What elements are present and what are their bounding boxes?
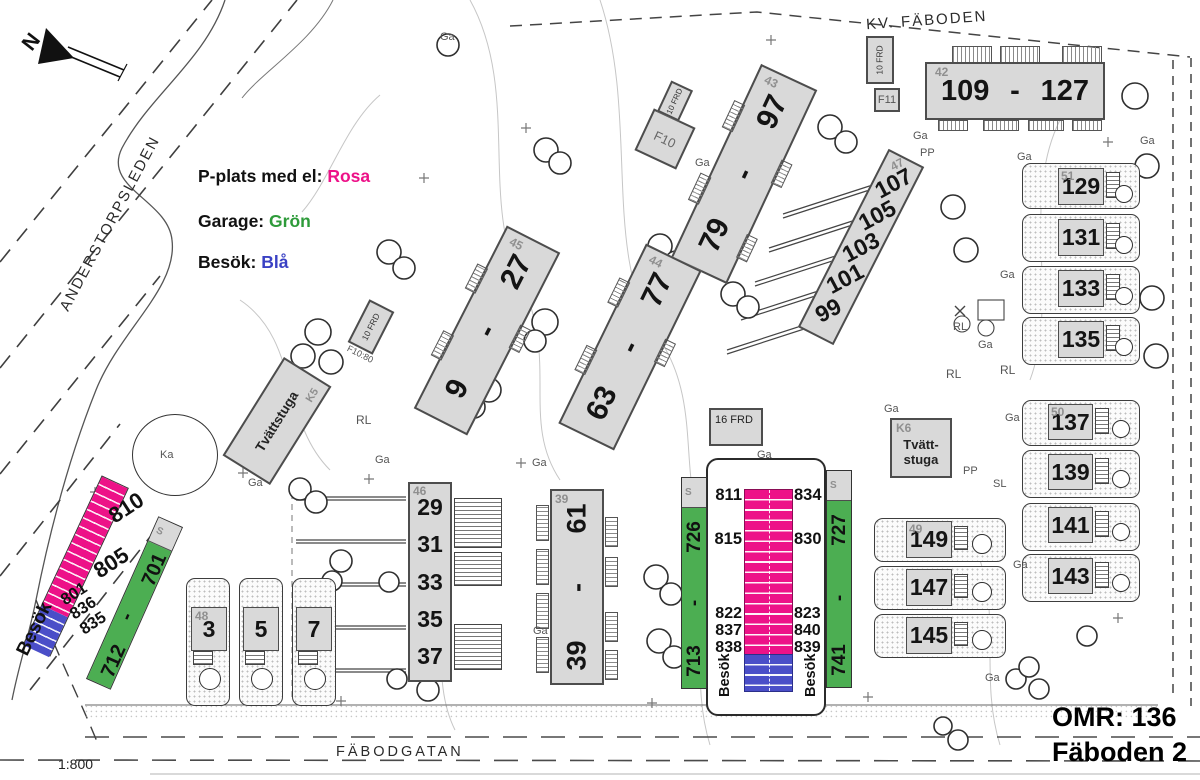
building-42-sep: - xyxy=(1010,75,1020,108)
building-tvattstuga-k6: K6 Tvätt- stuga xyxy=(890,418,952,478)
balcony-hatch xyxy=(1000,46,1040,63)
street-fabodgatan: FÄBODGATAN xyxy=(336,744,464,760)
houses-49-corner: 49 xyxy=(909,523,922,535)
ga-label: Ga xyxy=(1017,152,1032,163)
plan-title-omr: OMR: 136 xyxy=(1052,700,1187,735)
sl-label: SL xyxy=(993,479,1006,490)
houses-48-corner: 48 xyxy=(195,610,208,622)
building-45-sep: - xyxy=(470,318,505,342)
garage-727: 727 xyxy=(829,513,851,547)
yard-tree xyxy=(1112,523,1130,541)
house-131: 131 xyxy=(1058,219,1104,256)
house-135: 135 xyxy=(1058,321,1104,358)
balcony-hatch xyxy=(605,517,618,547)
house-stair xyxy=(1095,562,1109,588)
building-43-bottom: 79 xyxy=(693,213,738,258)
house-145: 145 xyxy=(906,617,952,654)
tvattstuga-k6-line2: stuga xyxy=(904,452,939,467)
ga-label: Ga xyxy=(1013,560,1028,571)
besok-label-center-left: Besök xyxy=(717,655,733,697)
house-141: 141 xyxy=(1048,507,1093,543)
pplats-822: 822 xyxy=(710,606,742,623)
rl-label: RL xyxy=(946,368,961,380)
building-42: 42 109 - 127 xyxy=(925,62,1105,120)
yard-tree xyxy=(1112,470,1130,488)
ga-label: Ga xyxy=(757,450,772,461)
pp-label: PP xyxy=(963,466,978,477)
site-plan-map: N ANDERSTORPSLEDEN FÄBODGATAN KV. FÄBODE… xyxy=(0,0,1200,780)
ga-label: Ga xyxy=(248,478,263,489)
roundabout xyxy=(132,414,218,496)
balcony-hatch xyxy=(536,593,549,629)
north-arrow-icon: N xyxy=(18,28,127,81)
house-139-num: 139 xyxy=(1051,459,1089,486)
house-stair xyxy=(193,651,213,665)
yard-tree xyxy=(1112,574,1130,592)
yard-tree xyxy=(972,534,992,554)
balcony-hatch xyxy=(1062,46,1102,63)
building-16frd: 16 FRD xyxy=(709,408,763,446)
building-39: 39 61 - 39 xyxy=(550,489,604,685)
tvattstuga-k5-label: Tvättstuga xyxy=(253,388,302,454)
garage-strip-726-713: S 726 - 713 xyxy=(681,477,707,689)
entrance-hatch xyxy=(1072,120,1102,131)
ga-label: Ga xyxy=(440,32,455,43)
house-5: 5 xyxy=(243,607,279,651)
building-f11-label: F11 xyxy=(878,94,896,106)
ga-label: Ga xyxy=(375,455,390,466)
legend-pplats: P-plats med el: Rosa xyxy=(198,166,370,187)
plan-title-name: Fäboden 2 xyxy=(1052,735,1187,770)
house-143-num: 143 xyxy=(1051,563,1089,590)
pplats-834: 834 xyxy=(794,486,822,505)
house-139: 139 xyxy=(1048,454,1093,490)
building-39-sep: - xyxy=(562,583,593,592)
house-141-num: 141 xyxy=(1051,512,1089,539)
houses-50-corner: 50 xyxy=(1051,406,1064,418)
balcony-hatch xyxy=(605,650,618,680)
house-129: 51 129 xyxy=(1058,168,1104,205)
ga-label: Ga xyxy=(532,458,547,469)
building-39-top: 61 xyxy=(561,503,592,533)
plan-title: OMR: 136 Fäboden 2 xyxy=(1052,700,1187,770)
besok-label-center-right: Besök xyxy=(803,655,819,697)
garage-741: 741 xyxy=(829,643,851,677)
house-147-num: 147 xyxy=(910,574,948,601)
building-45-top: 27 xyxy=(494,250,539,295)
house-145-num: 145 xyxy=(910,622,948,649)
balcony-hatch xyxy=(536,549,549,585)
yard-tree xyxy=(1115,338,1133,356)
building-f11: F11 xyxy=(874,88,900,112)
house-stair xyxy=(954,574,968,598)
building-42-left: 109 xyxy=(941,75,989,108)
entrance-hatch xyxy=(983,120,1019,131)
entrance-hatch xyxy=(1028,120,1064,131)
yard-tree xyxy=(1112,420,1130,438)
house-stair xyxy=(954,622,968,646)
building-44-sep: - xyxy=(613,335,648,359)
balcony-hatch xyxy=(952,46,992,63)
house-133: 133 xyxy=(1058,270,1104,307)
garage-726: 726 xyxy=(684,520,706,554)
tvattstuga-k6-corner: K6 xyxy=(896,422,911,434)
strip46-num: 33 xyxy=(417,569,443,596)
house-stair xyxy=(298,651,318,665)
yard-tree xyxy=(304,668,326,690)
rl-label: RL xyxy=(356,414,371,426)
house-5-num: 5 xyxy=(255,616,268,643)
building-44-top: 77 xyxy=(635,268,680,313)
pplats-811: 811 xyxy=(712,486,742,505)
tvattstuga-k6-line1: Tvätt- xyxy=(903,437,938,452)
building-45-bottom: 9 xyxy=(438,374,476,404)
building-43-sep: - xyxy=(726,162,761,185)
strip47-num: 99 xyxy=(811,293,846,329)
house-3: 48 3 xyxy=(191,607,227,651)
strip46-num: 31 xyxy=(417,531,443,558)
house-stair xyxy=(1095,458,1109,484)
house-stair xyxy=(1095,408,1109,434)
ga-label: Ga xyxy=(1005,413,1020,424)
building-44-bottom: 63 xyxy=(580,381,625,426)
balcony-hatch xyxy=(536,505,549,541)
building-39-bottom: 39 xyxy=(561,640,592,670)
yard-tree xyxy=(972,630,992,650)
ga-label: Ga xyxy=(913,131,928,142)
pp-label: PP xyxy=(920,148,935,159)
building-10frd-north-label: 10 FRD xyxy=(875,45,885,74)
building-43-top: 97 xyxy=(750,90,795,135)
yard-tree xyxy=(1115,185,1133,203)
building-42-right: 127 xyxy=(1041,75,1089,108)
legend-besok-label: Besök: xyxy=(198,252,256,272)
building-43-corner: 43 xyxy=(763,74,780,91)
pplats-837: 837 xyxy=(710,623,742,640)
ga-label: Ga xyxy=(1140,136,1155,147)
legend-garage-label: Garage: xyxy=(198,211,264,231)
tvattstuga-k5-corner: K5 xyxy=(304,387,321,405)
s-label: S xyxy=(830,480,837,491)
pplats-el-area-center xyxy=(744,489,793,656)
pplats-815: 815 xyxy=(712,530,742,549)
house-135-num: 135 xyxy=(1062,326,1100,353)
parking-center-block: 811 815 822 837 838 Besök 834 830 823 84… xyxy=(706,458,826,716)
building-10frd-45-label: 10 FRD xyxy=(360,312,382,343)
ga-label: Ga xyxy=(884,404,899,415)
garage-713: 713 xyxy=(684,644,706,678)
ga-label: Ga xyxy=(978,340,993,351)
balcony-hatch xyxy=(536,637,549,673)
house-7-num: 7 xyxy=(308,616,321,643)
house-147: 147 xyxy=(906,569,952,606)
rl-label: RL xyxy=(953,322,967,333)
stairwell xyxy=(454,498,502,548)
pplats-823: 823 xyxy=(794,606,821,623)
house-7: 7 xyxy=(296,607,332,651)
house-131-num: 131 xyxy=(1062,224,1100,251)
legend-pplats-value: Rosa xyxy=(327,166,370,186)
pplats-left-stack: 822 837 838 xyxy=(710,606,742,657)
legend-pplats-label: P-plats med el: xyxy=(198,166,322,186)
ga-label: Ga xyxy=(1000,270,1015,281)
garage-strip-727-741: S 727 - 741 xyxy=(826,470,852,688)
strip46-num: 37 xyxy=(417,643,443,670)
s-label: S xyxy=(685,487,692,498)
ka-label: Ka xyxy=(160,450,173,461)
building-10frd-f10-label: 10 FRD xyxy=(665,87,685,116)
ga-label: Ga xyxy=(533,626,548,637)
besok-area-center xyxy=(744,654,793,692)
building-42-corner: 42 xyxy=(935,66,948,78)
scale-label: 1:800 xyxy=(58,756,93,772)
yard-tree xyxy=(1115,287,1133,305)
building-46-strip: 46 29 31 33 35 37 xyxy=(408,482,452,682)
houses-51-corner: 51 xyxy=(1061,170,1074,182)
pplats-830: 830 xyxy=(794,530,822,549)
legend-besok: Besök: Blå xyxy=(198,252,288,273)
balcony-hatch xyxy=(605,612,618,642)
rl-label: RL xyxy=(1000,364,1015,376)
stairwell xyxy=(454,552,502,586)
house-stair xyxy=(245,651,265,665)
road-fabodgatan xyxy=(0,705,1200,774)
stairwell xyxy=(454,624,502,670)
legend-besok-value: Blå xyxy=(261,252,288,272)
house-143: 143 xyxy=(1048,558,1093,594)
garage-sep: - xyxy=(684,586,706,620)
pplats-840: 840 xyxy=(794,623,821,640)
strip46-num: 35 xyxy=(417,606,443,633)
yard-tree xyxy=(251,668,273,690)
ga-label: Ga xyxy=(695,158,710,169)
pplats-right-stack: 823 840 839 xyxy=(794,606,821,657)
balcony-hatch xyxy=(605,557,618,587)
house-149: 49 149 xyxy=(906,521,952,558)
entrance-hatch xyxy=(938,120,968,131)
house-stair xyxy=(1095,511,1109,537)
yard-tree xyxy=(972,582,992,602)
ga-label: Ga xyxy=(985,673,1000,684)
house-stair xyxy=(954,526,968,550)
garage-sep: - xyxy=(829,581,851,615)
house-133-num: 133 xyxy=(1062,275,1100,302)
legend-garage-value: Grön xyxy=(269,211,311,231)
building-f10-label: F10 xyxy=(652,127,679,150)
building-16frd-label: 16 FRD xyxy=(715,414,753,426)
building-46-corner: 46 xyxy=(413,485,426,497)
legend-garage: Garage: Grön xyxy=(198,211,311,232)
strip46-num: 29 xyxy=(417,494,443,521)
house-137: 50 137 xyxy=(1048,404,1093,440)
yard-tree xyxy=(1115,236,1133,254)
building-10frd-north: 10 FRD xyxy=(866,36,894,84)
s-label: S xyxy=(154,525,165,538)
yard-tree xyxy=(199,668,221,690)
